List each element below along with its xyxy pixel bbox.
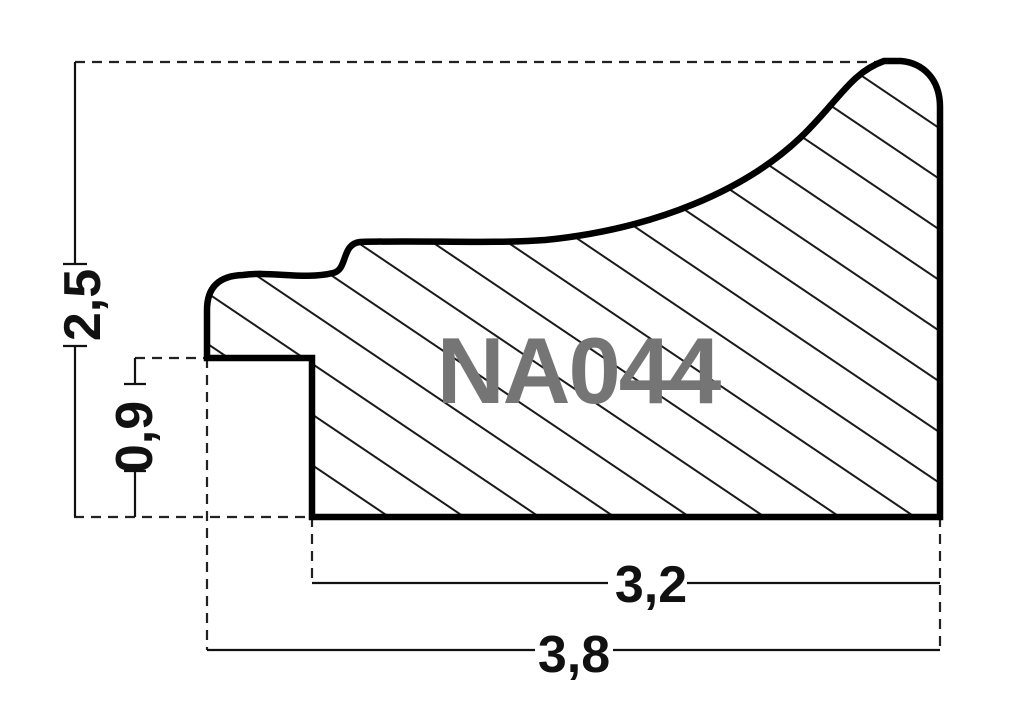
profile-outline xyxy=(207,61,940,517)
profile-cross-section-canvas: NA044 2,5 0,9 3,2 3,8 xyxy=(0,0,1024,725)
dimension-value-overall-width: 3,8 xyxy=(538,626,610,684)
moulding-profile-drawing: NA044 2,5 0,9 3,2 3,8 xyxy=(0,0,1024,725)
dimension-value-overall-height: 2,5 xyxy=(54,269,112,341)
dimension-rabbet-height: 0,9 xyxy=(106,358,164,517)
dimension-overall-height: 2,5 xyxy=(54,62,112,517)
dimension-overall-width: 3,8 xyxy=(207,626,940,684)
dimension-value-base-width: 3,2 xyxy=(615,556,687,614)
dimension-base-width: 3,2 xyxy=(312,556,940,614)
dimension-value-rabbet-height: 0,9 xyxy=(106,401,164,473)
profile-code-label: NA044 xyxy=(437,318,721,423)
